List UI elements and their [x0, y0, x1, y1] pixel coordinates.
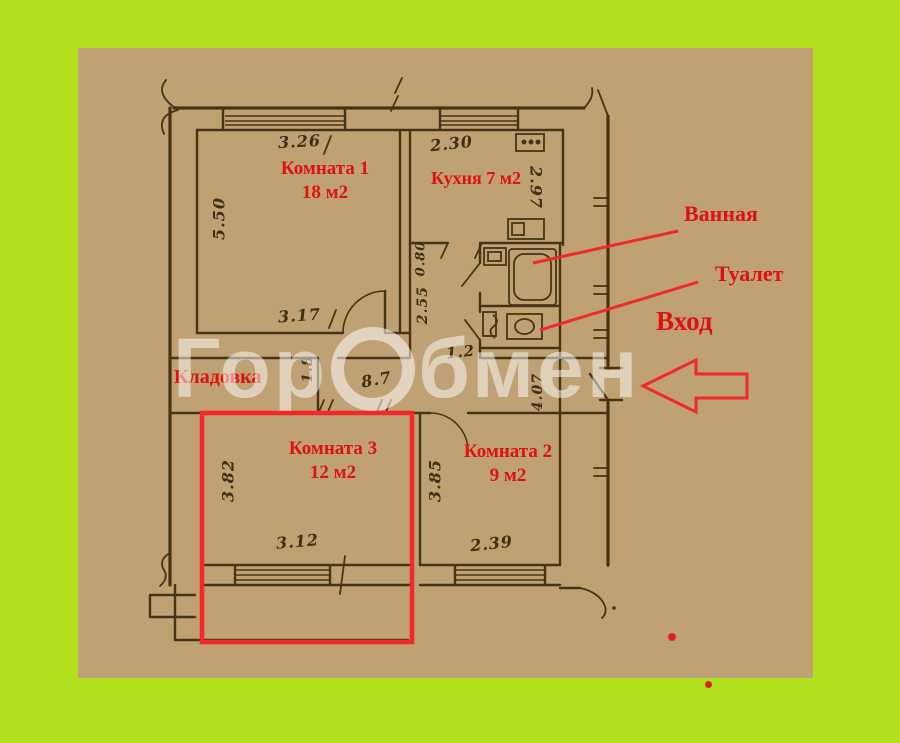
red-annotation-svg — [78, 48, 813, 678]
red-dot-outside — [705, 681, 712, 688]
entrance-arrow-icon — [643, 360, 747, 412]
toilet-pointer-line — [540, 282, 698, 330]
page-background: 3.26 5.50 3.17 2.30 2.97 0.80 2.55 1.8 8… — [0, 0, 900, 743]
floor-plan-scan: 3.26 5.50 3.17 2.30 2.97 0.80 2.55 1.8 8… — [78, 48, 813, 678]
red-dot-mark — [668, 633, 676, 641]
room3-highlight-rect — [202, 413, 412, 642]
bathroom-pointer-line — [533, 231, 678, 263]
